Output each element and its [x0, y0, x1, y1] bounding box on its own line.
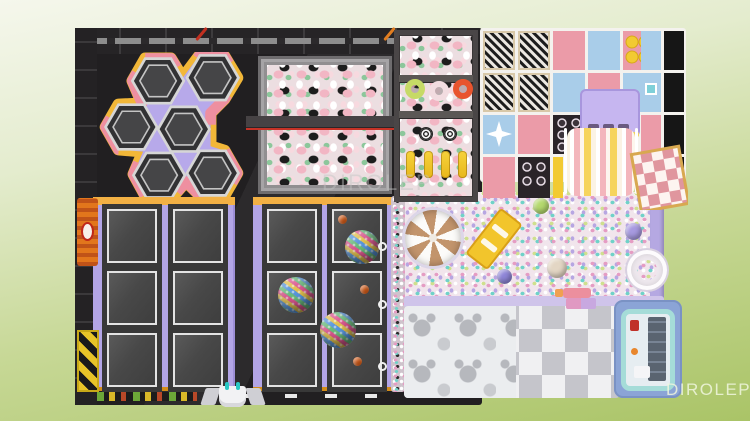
- climbing-panel: [77, 198, 98, 266]
- checker-mat: [631, 146, 688, 210]
- crossing-beam: [246, 116, 404, 127]
- wall-ring: [378, 242, 387, 251]
- spinner-cup: [627, 250, 667, 290]
- hexagon-trampoline-cluster: [97, 52, 247, 202]
- tan-ball: [547, 258, 567, 278]
- watermark-corner: DIROLEP: [666, 380, 750, 400]
- pad-stripe: [253, 205, 266, 387]
- trampoline-block-b: [253, 197, 393, 391]
- purple-ball: [497, 269, 512, 284]
- bear-puzzle-mats: [404, 306, 516, 398]
- orange-ball: [360, 285, 369, 294]
- trampoline-mat: [269, 335, 315, 385]
- hanging-ring-red: [453, 79, 473, 99]
- trampoline-mat: [175, 273, 221, 323]
- wall-ring: [378, 362, 387, 371]
- soft-play-structure: [480, 28, 688, 210]
- hanging-ring-white: [429, 81, 449, 101]
- trampoline-mat: [175, 335, 221, 385]
- pad-stripe: [157, 205, 172, 387]
- spinner-cup-balls: [637, 260, 657, 280]
- disco-ball: [320, 312, 356, 348]
- ninja-beam: [399, 111, 473, 118]
- wave-slide: [564, 128, 638, 196]
- step-wing: [245, 388, 266, 405]
- trampoline-block-a: [93, 197, 235, 391]
- punch-bag: [441, 151, 450, 178]
- watermark-center: DIROLEP: [322, 170, 433, 196]
- hanging-ring-green: [405, 79, 425, 99]
- pink-bench: [563, 288, 591, 298]
- orange-ball: [338, 215, 347, 224]
- spiral-target: [443, 127, 457, 141]
- colorful-walkway: [97, 392, 197, 401]
- playground-render: DIROLEP DIROLEP: [0, 0, 750, 421]
- play-toy-red: [630, 320, 639, 331]
- climbing-panel-window: [81, 222, 94, 241]
- trampoline-mat: [109, 273, 155, 323]
- trampoline-mat: [269, 211, 315, 261]
- purple-ball-2: [625, 223, 642, 240]
- spiral-target: [419, 127, 433, 141]
- padded-divider-wall: [391, 196, 405, 392]
- trampoline-mat: [175, 211, 221, 261]
- punch-bag: [458, 151, 467, 178]
- carousel-disc: [405, 210, 461, 266]
- trampoline-mat: [109, 211, 155, 261]
- play-kitchen: [648, 317, 666, 381]
- step-peg: [225, 382, 229, 390]
- pad-stripe: [316, 205, 331, 387]
- play-toy-orange: [631, 348, 638, 355]
- pad-stripe: [222, 205, 235, 387]
- teal-window: [646, 84, 656, 94]
- disco-ball: [278, 277, 314, 313]
- disco-ball: [345, 230, 379, 264]
- entrance-steps: [203, 384, 263, 410]
- step-peg: [236, 382, 240, 390]
- play-table: [634, 366, 650, 378]
- step-wing: [200, 388, 221, 405]
- hazard-stripe-panel: [77, 330, 99, 392]
- playhouse-frame: [621, 309, 675, 391]
- orange-ball: [353, 357, 362, 366]
- drum-panel-2: [518, 157, 550, 198]
- wall-ring: [378, 300, 387, 309]
- mini-mats: [566, 298, 596, 309]
- trampoline-mat: [109, 335, 155, 385]
- step-pad: [219, 386, 246, 407]
- green-ball: [533, 198, 549, 214]
